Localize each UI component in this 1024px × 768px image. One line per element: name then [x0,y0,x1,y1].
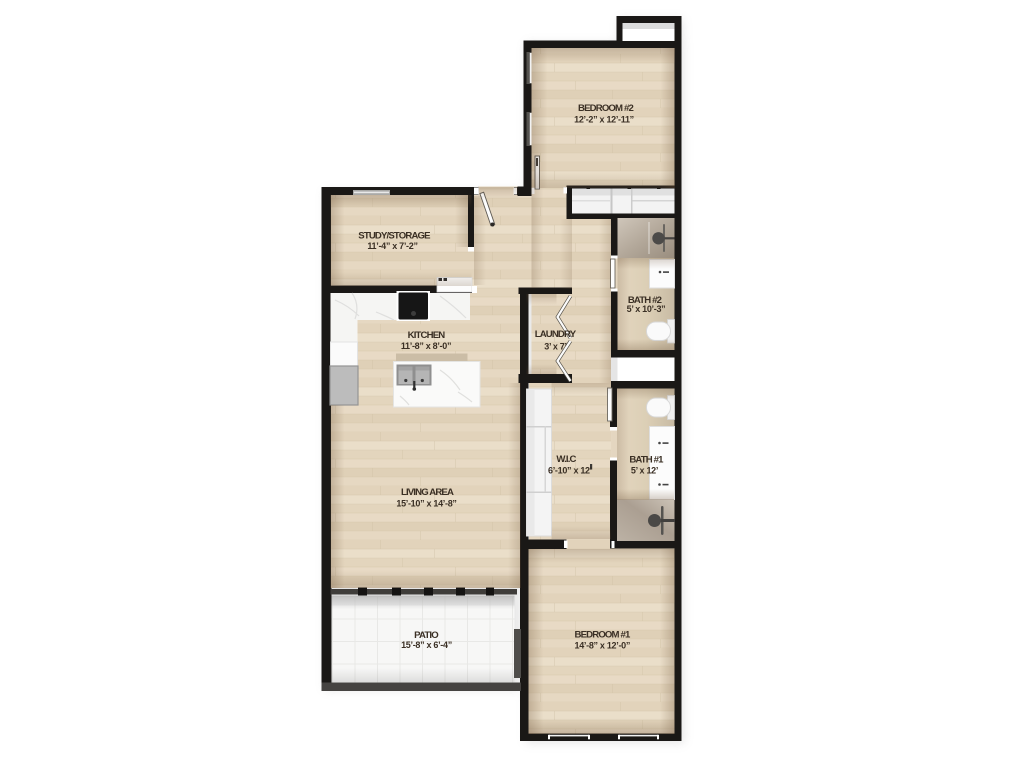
svg-text:12’-2” x 12’-11”: 12’-2” x 12’-11” [574,115,634,125]
svg-text:6’-10” x 12’: 6’-10” x 12’ [548,466,592,476]
svg-text:3’ x 7’: 3’ x 7’ [544,342,566,352]
svg-text:KITCHEN: KITCHEN [408,330,446,341]
svg-text:15’-10” x 14’-8”: 15’-10” x 14’-8” [396,499,456,509]
svg-text:STUDY/STORAGE: STUDY/STORAGE [358,231,431,242]
svg-text:LAUNDRY: LAUNDRY [535,329,577,340]
svg-text:LIVING AREA: LIVING AREA [401,487,454,498]
svg-text:11’-8” x 8’-0”: 11’-8” x 8’-0” [401,341,451,351]
svg-text:BEDROOM #2: BEDROOM #2 [578,103,633,114]
svg-text:5’ x 10’-3”: 5’ x 10’-3” [627,304,666,314]
svg-text:5’ x 12’: 5’ x 12’ [631,466,658,476]
svg-text:14’-8” x 12’-0”: 14’-8” x 12’-0” [575,641,631,651]
svg-text:11’-4” x 7’-2”: 11’-4” x 7’-2” [367,241,417,251]
svg-text:BATH #1: BATH #1 [629,455,664,466]
svg-text:W.I.C: W.I.C [556,454,576,465]
svg-text:15’-8” x 6’-4”: 15’-8” x 6’-4” [401,640,452,650]
svg-text:BEDROOM #1: BEDROOM #1 [575,630,631,641]
